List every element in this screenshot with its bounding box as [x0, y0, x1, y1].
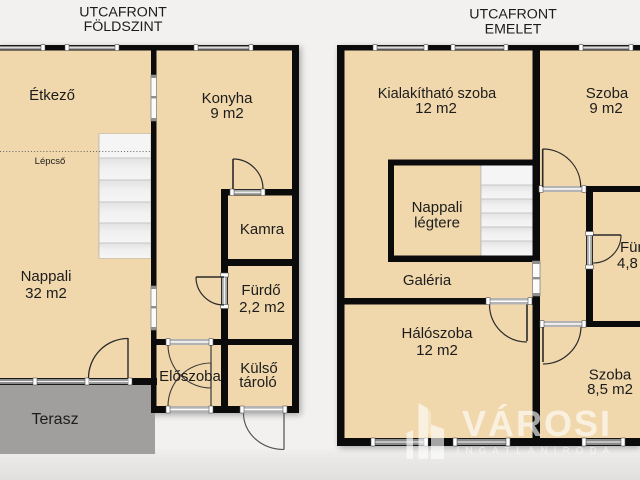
svg-text:EMELET: EMELET — [485, 22, 542, 38]
svg-text:Hálószoba: Hálószoba — [402, 325, 474, 342]
svg-text:8,5 m2: 8,5 m2 — [587, 381, 633, 398]
svg-text:4,8 m2: 4,8 m2 — [617, 255, 640, 272]
svg-text:Fürdő: Fürdő — [241, 282, 280, 299]
svg-text:9 m2: 9 m2 — [589, 100, 622, 117]
svg-text:2,2 m2: 2,2 m2 — [239, 299, 285, 316]
svg-text:Nappali: Nappali — [412, 199, 463, 216]
svg-text:Előszoba: Előszoba — [159, 368, 221, 385]
svg-text:Terasz: Terasz — [31, 411, 78, 428]
svg-text:tároló: tároló — [239, 374, 277, 391]
svg-text:INGATLANIRODA: INGATLANIRODA — [457, 446, 616, 457]
svg-text:Fürdő: Fürdő — [620, 239, 640, 256]
svg-text:Kamra: Kamra — [240, 221, 285, 238]
svg-text:Galéria: Galéria — [403, 272, 452, 289]
svg-text:9 m2: 9 m2 — [210, 105, 243, 122]
svg-text:32 m2: 32 m2 — [25, 285, 67, 302]
svg-text:Lépcső: Lépcső — [35, 156, 66, 167]
svg-text:UTCAFRONT: UTCAFRONT — [469, 7, 557, 23]
svg-text:Nappali: Nappali — [21, 268, 72, 285]
svg-text:12 m2: 12 m2 — [416, 342, 458, 359]
svg-text:VÁROSI: VÁROSI — [462, 403, 612, 444]
svg-text:FÖLDSZINT: FÖLDSZINT — [84, 17, 163, 35]
svg-text:12 m2: 12 m2 — [415, 100, 457, 117]
svg-text:Étkező: Étkező — [29, 87, 75, 104]
svg-text:légtere: légtere — [414, 215, 460, 232]
